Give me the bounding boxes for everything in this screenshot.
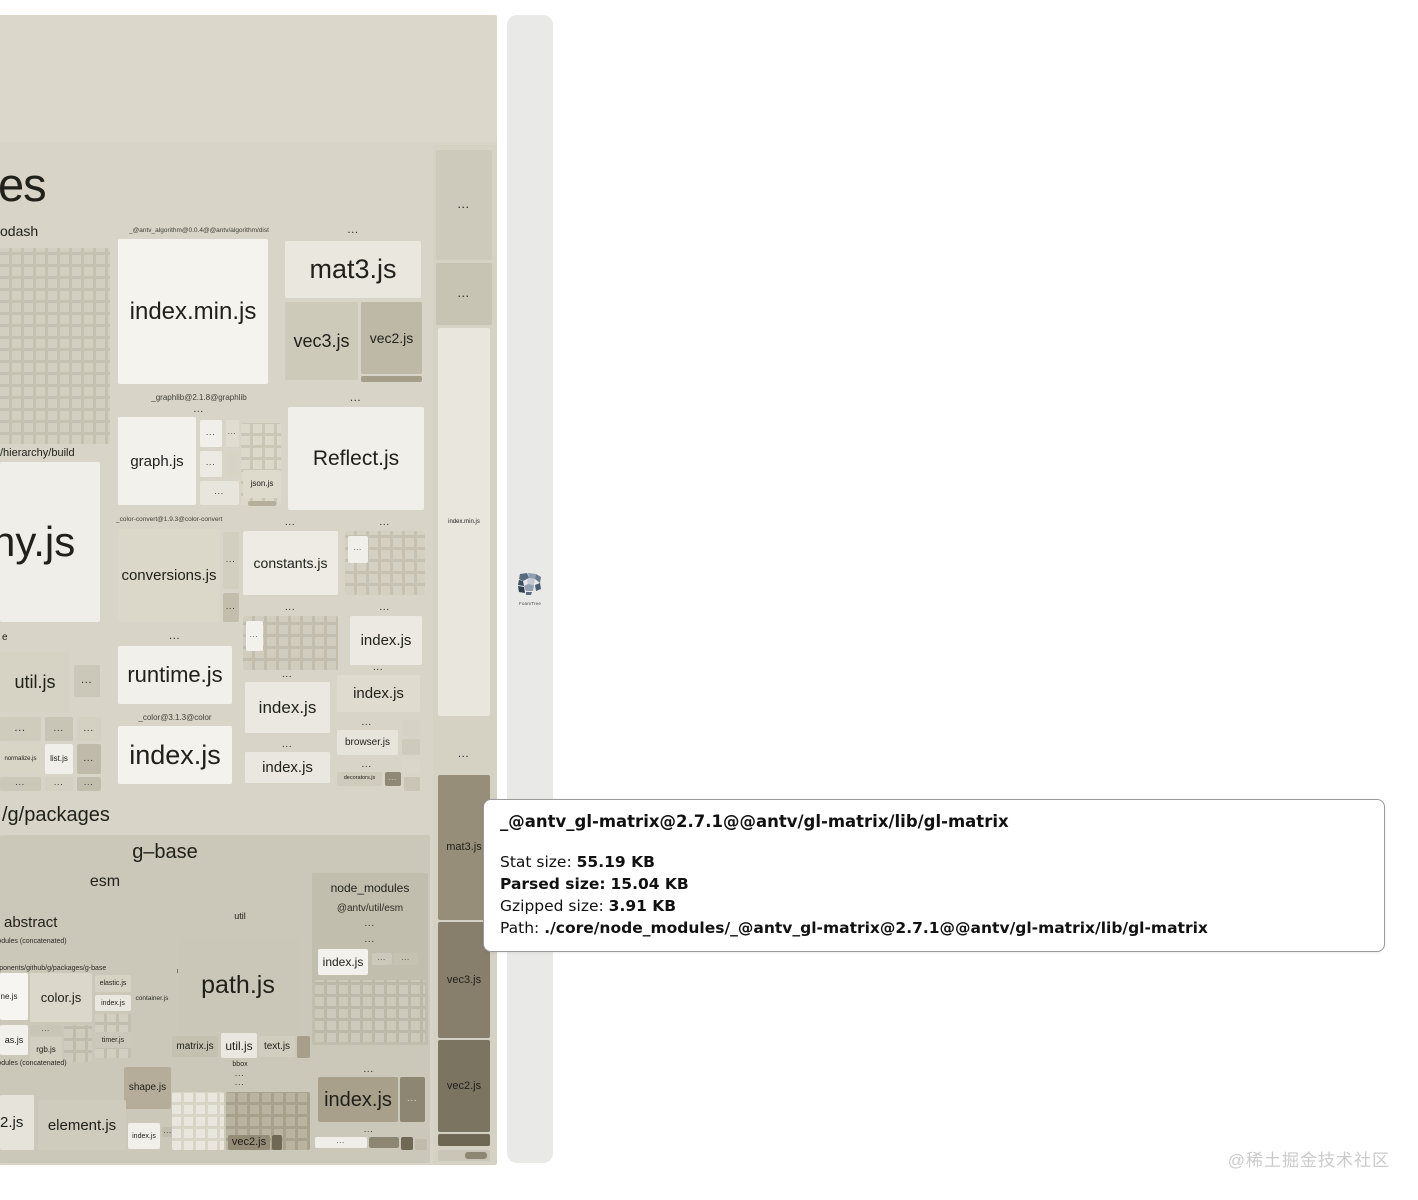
cell-index-js[interactable]: index.js — [318, 1077, 398, 1122]
cell-util-js[interactable]: util.js — [221, 1033, 257, 1058]
group-label-ellipsis[interactable]: ... — [337, 663, 420, 673]
cell-ellipsis[interactable]: ... — [246, 621, 263, 651]
cell-browser-js[interactable]: browser.js — [337, 730, 398, 755]
cell-shape-js[interactable]: shape.js — [124, 1067, 171, 1109]
cell-ellipsis[interactable]: ... — [74, 665, 100, 697]
cell-line-js[interactable]: line.js — [0, 973, 28, 1020]
cell-matrix-js[interactable]: matrix.js — [172, 1036, 218, 1057]
group-label-lodash[interactable]: odash — [0, 223, 100, 239]
juejin-watermark: @稀土掘金技术社区 — [1228, 1146, 1390, 1171]
cell-ellipsis[interactable]: ... — [372, 953, 392, 965]
cell-ellipsis[interactable]: ... — [394, 953, 418, 965]
cell-small[interactable] — [226, 451, 239, 477]
cell-ellipsis[interactable]: ... — [348, 536, 368, 563]
foamtree-logo[interactable]: FoamTree — [515, 573, 545, 606]
cell-index-js[interactable]: index.js — [245, 752, 330, 783]
cell-ellipsis[interactable]: ... — [0, 777, 41, 791]
group-label-ellipsis[interactable]: ... — [210, 1080, 270, 1088]
group-label-graphlib[interactable]: _graphlib@2.1.8@graphlib — [116, 392, 282, 404]
cell-runtime-js[interactable]: runtime.js — [118, 646, 232, 704]
cell-index-js[interactable]: index.js — [118, 726, 232, 784]
strip-ellipsis-block[interactable]: ... — [436, 263, 492, 325]
cell-vec2-bar[interactable] — [361, 376, 422, 382]
group-label-es[interactable]: es — [0, 155, 118, 213]
cell-vec2-js[interactable]: vec2.js — [361, 302, 422, 374]
group-label-antv-util-esm[interactable]: @antv/util/esm — [312, 903, 428, 915]
cell-ellipsis[interactable]: ... — [30, 1025, 62, 1035]
cell-small[interactable] — [401, 1137, 413, 1150]
group-label-ellipsis[interactable]: ... — [337, 718, 397, 728]
tooltip-title: _@antv_gl-matrix@2.7.1@@antv/gl-matrix/l… — [500, 812, 1368, 831]
group-label-ellipsis[interactable]: ... — [337, 760, 397, 770]
group-label-util[interactable]: util — [225, 910, 255, 922]
cell-ellipsis[interactable]: ... — [315, 1137, 367, 1148]
cell-ellipsis[interactable]: ... — [45, 717, 73, 741]
group-label-ellipsis[interactable]: ... — [288, 393, 424, 405]
cell-path-js[interactable]: path.js — [178, 938, 298, 1032]
cell-index-js[interactable]: index.js — [337, 675, 420, 712]
cell-small[interactable] — [402, 739, 420, 755]
lodash-module-grid[interactable] — [0, 248, 110, 444]
group-label-antv-algorithm[interactable]: _@antv_algorithm@0.0.4@@antv/algorithm/d… — [116, 225, 282, 237]
group-label-ellipsis[interactable]: ... — [345, 603, 425, 614]
cell-vec3-js[interactable]: vec3.js — [285, 302, 358, 380]
group-label-esm[interactable]: esm — [0, 871, 210, 893]
group-label-ellipsis[interactable]: ... — [312, 920, 428, 929]
cell-as-js[interactable]: as.js — [0, 1025, 28, 1055]
cell-ellipsis[interactable]: ... — [385, 772, 401, 786]
module-grid[interactable] — [172, 1092, 224, 1150]
cell-constants-js[interactable]: constants.js — [243, 531, 338, 595]
group-label-g-base[interactable]: g–base — [0, 839, 330, 865]
cell-ellipsis[interactable]: ... — [226, 420, 239, 447]
cell-element-js[interactable]: element.js — [38, 1100, 126, 1150]
group-label-ellipsis[interactable]: ... — [243, 603, 338, 614]
group-label-ellipsis[interactable]: ... — [312, 1066, 426, 1075]
group-label-ellipsis[interactable]: ... — [285, 225, 422, 237]
group-label-modules-concatenated[interactable]: node_modules (concatenated) — [0, 1058, 75, 1068]
cell-ellipsis[interactable]: ... — [200, 481, 239, 505]
cell-index-js[interactable]: index.js — [128, 1123, 160, 1149]
cell-small[interactable] — [369, 1137, 399, 1148]
cell-index-js[interactable]: index.js — [318, 949, 368, 975]
group-label-g-packages[interactable]: /g/packages — [2, 801, 222, 829]
cell-small[interactable] — [297, 1036, 310, 1058]
group-label-ellipsis[interactable]: ... — [116, 405, 282, 415]
treemap-top-block[interactable] — [0, 15, 497, 142]
group-label-ellipsis[interactable]: ... — [312, 936, 428, 945]
cell-elastic-js[interactable]: elastic.js — [95, 975, 131, 992]
cell-json-bar[interactable] — [248, 501, 276, 506]
cell-ellipsis[interactable]: ... — [77, 717, 101, 741]
group-label-ellipsis[interactable]: ... — [245, 740, 330, 750]
cell-ellipsis[interactable]: ... — [223, 593, 239, 622]
group-label-node-modules[interactable]: node_modules — [312, 881, 428, 895]
strip-vec2-js[interactable]: vec2.js — [438, 1040, 490, 1132]
cell-index-min-js[interactable]: index.min.js — [118, 239, 268, 384]
group-label-ellipsis[interactable]: ... — [243, 518, 338, 529]
strip-ellipsis-block[interactable]: ... — [436, 745, 492, 765]
tooltip-path: Path: ./core/node_modules/_@antv_gl-matr… — [500, 917, 1368, 939]
group-label-ellipsis[interactable]: ... — [312, 1127, 426, 1135]
cell-index-js[interactable]: index.js — [350, 616, 422, 665]
cell-small[interactable] — [272, 1135, 282, 1150]
tooltip-parsed-size: Parsed size: 15.04 KB — [500, 873, 1368, 895]
cell-conversions-js[interactable]: conversions.js — [118, 529, 220, 622]
cell-index-js[interactable]: index.js — [95, 995, 131, 1011]
group-label-ellipsis[interactable]: ... — [118, 631, 232, 643]
cell-mat3-js[interactable]: mat3.js — [285, 241, 421, 298]
cell-ellipsis[interactable]: ... — [400, 1077, 425, 1122]
cell-graph-js[interactable]: graph.js — [118, 417, 196, 505]
foamtree-logo-icon — [517, 573, 543, 595]
cell-ellipsis[interactable]: ... — [200, 420, 222, 447]
group-label-github-g-base-path[interactable]: components/github/g/packages/g-base — [0, 963, 130, 973]
tooltip-gzipped-size: Gzipped size: 3.91 KB — [500, 895, 1368, 917]
cell-reflect-js[interactable]: Reflect.js — [288, 407, 424, 510]
cell-normalize-js[interactable]: normalize.js — [0, 744, 41, 774]
strip-small-bar[interactable] — [438, 1134, 490, 1146]
cell-ellipsis[interactable]: ... — [77, 744, 101, 774]
cell-small[interactable] — [402, 759, 420, 773]
group-label-node-modules-concatenated[interactable]: node_modules (concatenated) — [0, 936, 92, 946]
group-label-ellipsis[interactable]: ... — [245, 670, 330, 680]
cell-decorators-js[interactable]: decorators.js — [337, 772, 382, 786]
cell-ellipsis[interactable]: ... — [77, 777, 101, 791]
group-label-bbox[interactable]: bbox — [210, 1060, 270, 1069]
cell-ellipsis[interactable]: ... — [223, 532, 239, 589]
strip-bottom-pill[interactable] — [465, 1152, 487, 1159]
strip-index-min-js[interactable]: index.min.js — [438, 328, 490, 716]
cell-json-js[interactable]: json.js — [243, 470, 281, 498]
cell-index-js[interactable]: index.js — [245, 682, 330, 733]
cell-ellipsis[interactable]: ... — [45, 777, 73, 791]
collapsed-treemap-panel[interactable]: FoamTree — [507, 15, 553, 1163]
cell-small[interactable] — [415, 1139, 427, 1150]
module-grid[interactable] — [315, 980, 425, 1042]
cell-timer-js[interactable]: timer.js — [95, 1032, 131, 1048]
bundle-treemap[interactable]: es odash /hierarchy/build ny.js e util.j… — [0, 15, 497, 1165]
group-label-color-convert[interactable]: _color-convert@1.9.3@color-convert — [116, 515, 240, 526]
cell-ellipsis[interactable]: ... — [0, 717, 41, 741]
tooltip-stat-size: Stat size: 55.19 KB — [500, 851, 1368, 873]
cell-ellipsis[interactable]: ... — [200, 451, 222, 477]
cell-small[interactable] — [404, 777, 420, 791]
cell-list-js[interactable]: list.js — [45, 744, 73, 774]
cell-small[interactable] — [402, 720, 420, 736]
cell-color-js[interactable]: color.js — [30, 973, 92, 1022]
cell-util-js[interactable]: util.js — [0, 652, 70, 712]
cell-two-js[interactable]: 2.js — [0, 1095, 34, 1150]
foamtree-label: FoamTree — [515, 601, 545, 606]
group-label-color-pkg[interactable]: _color@3.1.3@color — [118, 712, 232, 724]
module-tooltip: _@antv_gl-matrix@2.7.1@@antv/gl-matrix/l… — [483, 799, 1385, 952]
group-label-hierarchy-build[interactable]: /hierarchy/build — [0, 447, 110, 460]
group-label-container-js[interactable]: container.js — [132, 994, 172, 1004]
group-label-ellipsis[interactable]: ... — [345, 518, 425, 529]
cell-hierarchy-js[interactable]: ny.js — [0, 462, 100, 622]
group-label-ellipsis[interactable]: ... — [210, 1071, 270, 1079]
strip-ellipsis-block[interactable]: ... — [436, 150, 492, 260]
group-label-e[interactable]: e — [2, 632, 32, 643]
cell-vec2-js[interactable]: vec2.js — [228, 1135, 270, 1150]
module-grid[interactable] — [64, 1025, 92, 1062]
cell-text-js[interactable]: text.js — [259, 1036, 295, 1057]
group-label-abstract[interactable]: abstract — [4, 913, 144, 931]
